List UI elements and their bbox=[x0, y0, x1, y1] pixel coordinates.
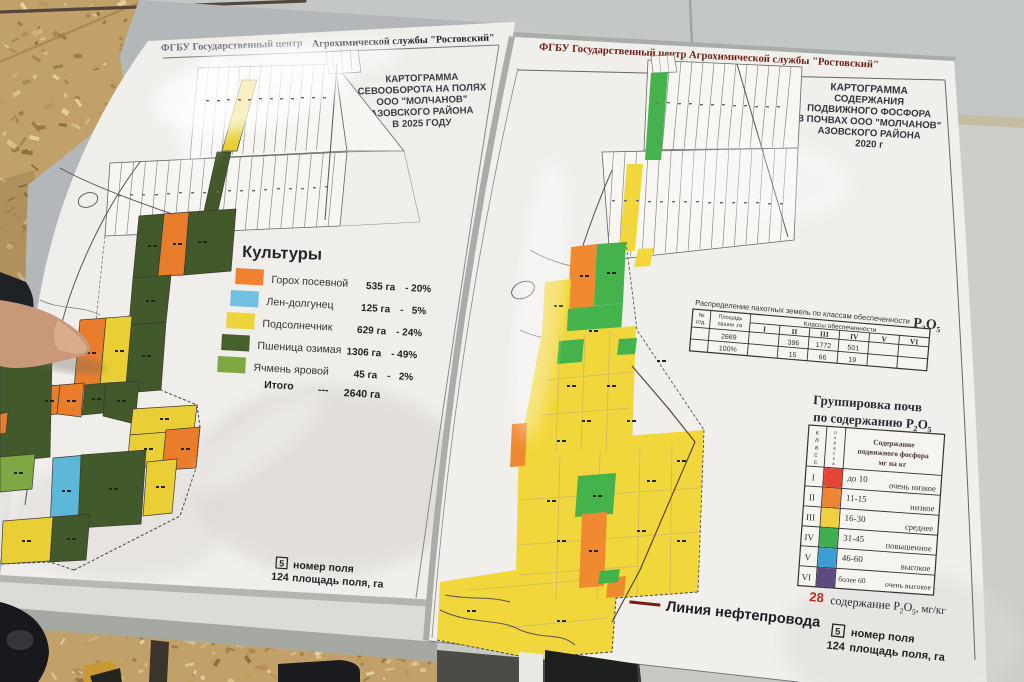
svg-text:19: 19 bbox=[848, 357, 856, 365]
svg-text:15: 15 bbox=[788, 352, 796, 360]
svg-text:501: 501 bbox=[847, 345, 859, 353]
svg-text:1306 га: 1306 га bbox=[346, 347, 382, 360]
svg-text:45 га: 45 га bbox=[353, 369, 378, 381]
svg-text:Культуры: Культуры bbox=[242, 243, 322, 264]
svg-text:-: - bbox=[405, 283, 409, 294]
svg-text:-: - bbox=[396, 327, 400, 338]
svg-text:II: II bbox=[791, 327, 798, 336]
svg-text:20%: 20% bbox=[411, 283, 432, 295]
svg-text:535 га: 535 га bbox=[366, 281, 396, 294]
svg-text:до 10: до 10 bbox=[847, 473, 868, 484]
svg-text:VI: VI bbox=[801, 572, 811, 583]
svg-text:более 60: более 60 bbox=[838, 574, 866, 585]
svg-text:66: 66 bbox=[818, 354, 826, 362]
svg-text:125 га: 125 га bbox=[361, 303, 391, 316]
svg-text:629 га: 629 га bbox=[357, 325, 387, 338]
svg-text:2%: 2% bbox=[398, 371, 413, 383]
svg-text:---: --- bbox=[318, 384, 330, 397]
svg-text:16-30: 16-30 bbox=[844, 513, 866, 524]
svg-text:III: III bbox=[820, 329, 830, 339]
svg-text:В 2025 ГОДУ: В 2025 ГОДУ bbox=[392, 117, 453, 130]
svg-text:5: 5 bbox=[279, 558, 285, 568]
svg-text:1772: 1772 bbox=[815, 342, 831, 350]
svg-text:11-15: 11-15 bbox=[846, 493, 868, 504]
svg-text:Итого: Итого bbox=[264, 379, 294, 393]
svg-text:49%: 49% bbox=[397, 349, 418, 361]
svg-text:IV: IV bbox=[804, 532, 815, 543]
svg-text:IV: IV bbox=[850, 332, 860, 342]
svg-text:31-45: 31-45 bbox=[843, 533, 865, 544]
svg-text:396: 396 bbox=[787, 340, 799, 348]
svg-text:-: - bbox=[387, 371, 391, 382]
svg-text:л: л bbox=[815, 437, 819, 444]
svg-text:124: 124 bbox=[271, 571, 289, 584]
svg-text:-: - bbox=[391, 349, 395, 360]
svg-text:124: 124 bbox=[826, 640, 846, 654]
svg-text:II: II bbox=[809, 492, 816, 502]
svg-text:среднее: среднее bbox=[905, 521, 934, 533]
svg-text:высокое: высокое bbox=[900, 561, 930, 573]
svg-text:отд.: отд. bbox=[696, 319, 707, 326]
svg-text:2020 г: 2020 г bbox=[855, 138, 884, 150]
svg-text:-: - bbox=[400, 305, 404, 316]
svg-text:III: III bbox=[806, 512, 816, 523]
svg-text:2640 га: 2640 га bbox=[344, 387, 381, 401]
svg-text:№: № bbox=[698, 312, 704, 318]
svg-text:V: V bbox=[804, 552, 812, 562]
svg-text:24%: 24% bbox=[402, 327, 423, 339]
svg-text:100%: 100% bbox=[719, 345, 737, 353]
svg-text:VI: VI bbox=[910, 337, 919, 347]
svg-text:5%: 5% bbox=[411, 305, 426, 317]
svg-text:46-60: 46-60 bbox=[841, 553, 863, 564]
svg-text:28: 28 bbox=[809, 589, 825, 605]
svg-text:низкое: низкое bbox=[910, 502, 935, 514]
svg-text:2669: 2669 bbox=[721, 333, 737, 341]
